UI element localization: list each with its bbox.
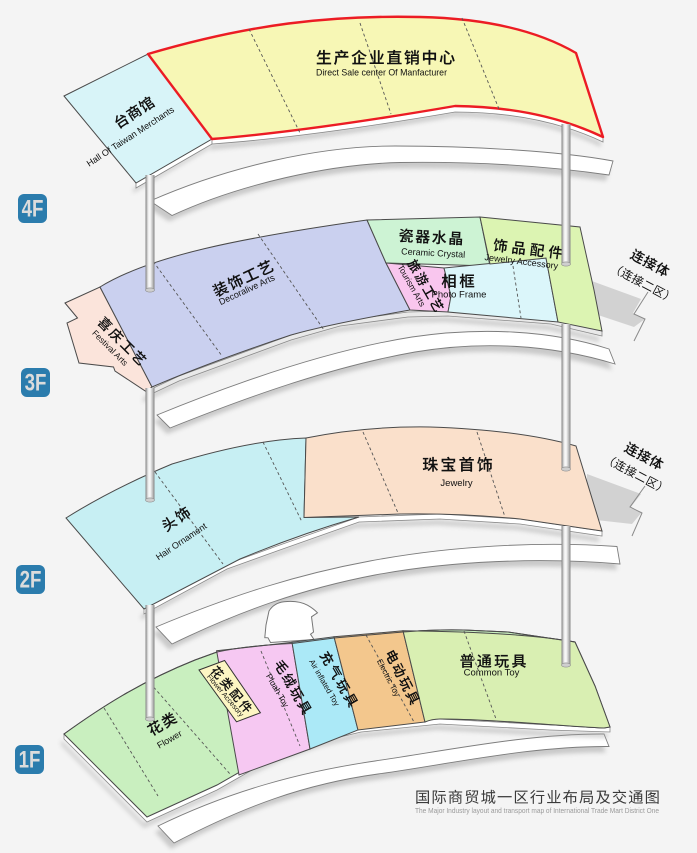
svg-text:Jewelry: Jewelry <box>440 478 472 489</box>
svg-text:3F: 3F <box>25 369 47 396</box>
svg-text:Common Toy: Common Toy <box>464 668 520 679</box>
svg-text:4F: 4F <box>22 195 44 222</box>
svg-text:2F: 2F <box>20 566 42 593</box>
svg-text:Photo Frame: Photo Frame <box>432 290 487 301</box>
svg-text:1F: 1F <box>19 746 41 773</box>
svg-text:Direct Sale center Of Manfactu: Direct Sale center Of Manfacturer <box>316 68 447 79</box>
svg-text:The Major Industry layout and: The Major Industry layout and transport … <box>415 806 659 815</box>
